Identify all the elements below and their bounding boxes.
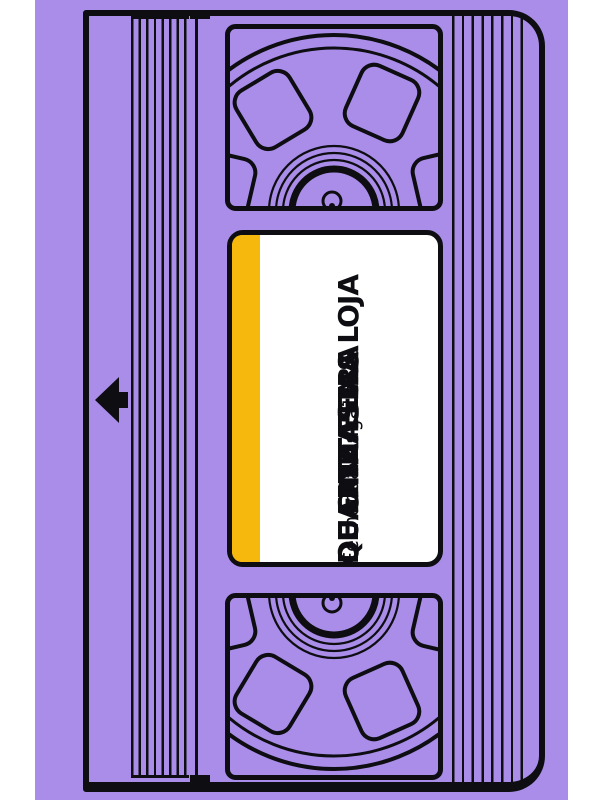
label-text-block: QUARTA-FEIRA DE CINZAS NA LOJA DE FANTAS… bbox=[256, 234, 442, 564]
book-cover: QUARTA-FEIRA DE CINZAS NA LOJA DE FANTAS… bbox=[35, 0, 568, 800]
reel-window-bottom-icon bbox=[225, 593, 443, 780]
tape-edge-ridges-right bbox=[452, 13, 523, 785]
reel-window-top-icon bbox=[225, 24, 443, 211]
tape-spine-ridge-divider bbox=[195, 13, 198, 782]
tape-notch-bottom bbox=[190, 775, 210, 792]
tape-label: QUARTA-FEIRA DE CINZAS NA LOJA DE FANTAS… bbox=[227, 230, 443, 567]
tape-spine-ridges-left bbox=[131, 16, 189, 778]
author-name: Fernanda Magalhães bbox=[334, 347, 368, 564]
tape-notch-top bbox=[190, 10, 210, 19]
left-arrow-icon bbox=[95, 376, 129, 424]
